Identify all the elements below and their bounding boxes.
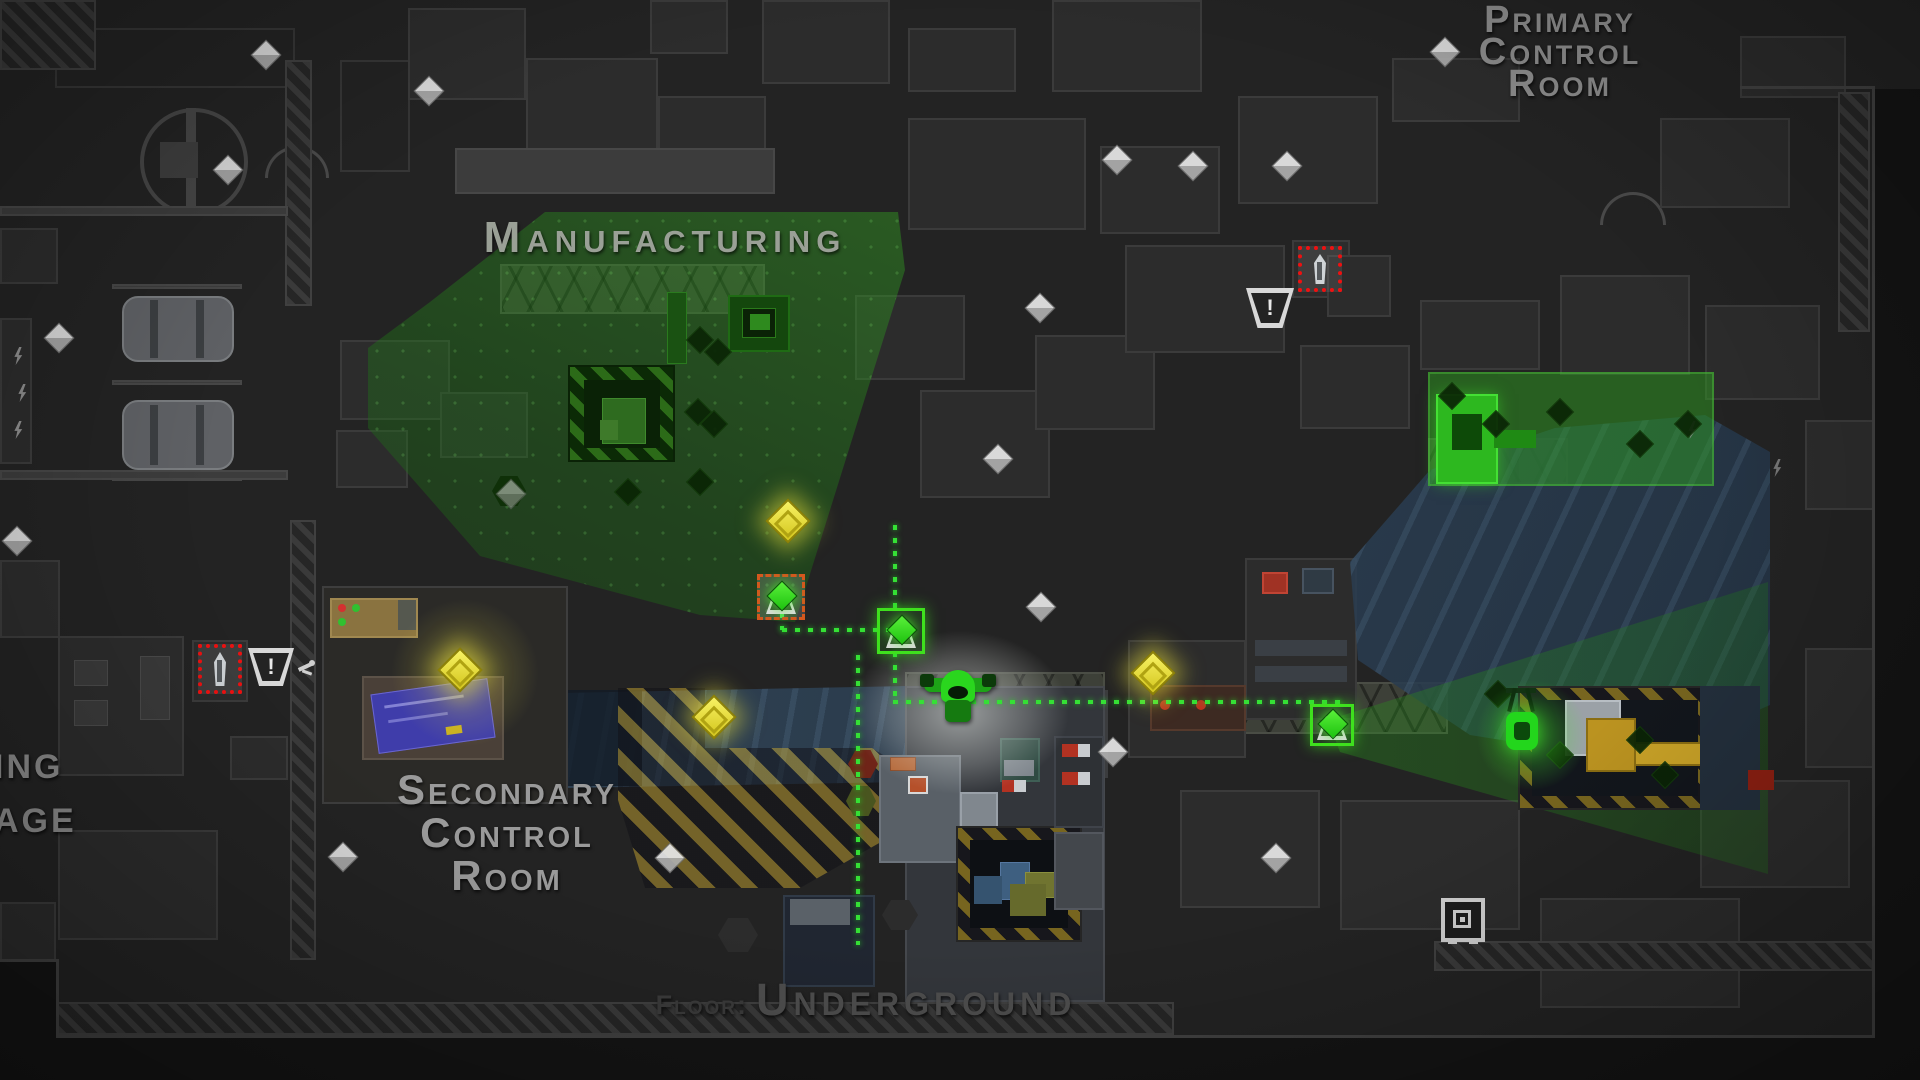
map-detail	[1586, 718, 1636, 772]
objective-box[interactable]	[877, 608, 925, 654]
map-detail	[352, 604, 360, 612]
label-manufacturing: Manufacturing	[455, 220, 875, 256]
room-outline	[340, 60, 410, 172]
round-structure-core	[160, 142, 198, 178]
safe-icon[interactable]	[1441, 898, 1485, 942]
wall-block-light	[112, 284, 242, 289]
wall-block	[650, 0, 728, 54]
wall-block	[762, 0, 890, 84]
guard-alert-marker[interactable]	[198, 644, 242, 694]
hexagon-outline	[718, 918, 758, 952]
map-detail	[338, 604, 346, 612]
warning-exclamation: !	[253, 653, 289, 681]
spark-icon	[1771, 459, 1783, 477]
wall-block	[920, 390, 1050, 498]
hatched-wall	[0, 0, 96, 70]
wall-block-light	[455, 148, 775, 194]
loot-diamond-inner	[774, 510, 802, 538]
map-detail	[1062, 772, 1090, 785]
wall-block	[855, 295, 965, 380]
coin-diamond[interactable]	[1, 525, 32, 556]
map-detail	[667, 292, 687, 364]
label-parking-garage-fragment: ing age	[0, 736, 84, 844]
map-detail	[196, 300, 204, 358]
hatched-wall	[285, 60, 312, 306]
wall-block	[1705, 305, 1820, 400]
label-secondary-control-room: Secondary Control Room	[372, 768, 642, 897]
warning-exclamation: !	[1251, 293, 1289, 323]
map-detail	[1302, 568, 1334, 594]
worker-handle-bar	[1506, 688, 1536, 693]
label-floor: Floor:	[598, 994, 748, 1016]
wall-block	[0, 560, 60, 638]
map-frame-bottom-left-v	[56, 959, 59, 1038]
coin-diamond[interactable]	[1024, 292, 1055, 323]
worker-body-detail	[1514, 722, 1530, 740]
warning-icon: !	[248, 648, 294, 686]
wall-block	[1052, 0, 1202, 92]
wall-block	[230, 736, 288, 780]
objective-box[interactable]	[1310, 704, 1354, 746]
loot-diamond-inner	[1139, 662, 1167, 690]
door-arc	[1600, 192, 1666, 225]
hatched-wall	[1838, 92, 1870, 332]
wall-block	[1420, 300, 1540, 370]
wall-block	[1340, 800, 1520, 930]
map-detail	[122, 400, 234, 470]
path-segment	[893, 652, 897, 702]
coin-diamond[interactable]	[654, 842, 685, 873]
loot-diamond-inner	[446, 659, 474, 687]
hatched-wall	[1434, 941, 1874, 971]
guard-alert-marker[interactable]	[1298, 246, 1342, 292]
coin-diamond[interactable]	[1025, 591, 1056, 622]
map-frame-bottom-fill	[0, 1038, 1920, 1080]
wall-block-light	[0, 206, 288, 216]
catwalk-truss	[500, 264, 765, 314]
path-segment	[893, 525, 897, 611]
wall-block	[336, 430, 408, 488]
wall-block	[0, 228, 58, 284]
map-detail	[790, 899, 850, 925]
coin-diamond[interactable]	[43, 322, 74, 353]
map-detail	[1255, 666, 1347, 682]
map-detail	[600, 420, 618, 440]
wall-block	[340, 340, 450, 420]
safe-foot	[1448, 938, 1457, 944]
wall-block	[908, 118, 1086, 230]
map-detail	[1054, 832, 1104, 910]
map-detail	[1452, 414, 1482, 450]
map-detail	[1700, 686, 1760, 810]
loot-diamond[interactable]	[765, 498, 810, 543]
map-detail	[74, 660, 108, 686]
wall-block	[658, 96, 766, 152]
loot-diamond[interactable]	[691, 694, 736, 739]
dog-icon	[298, 658, 316, 680]
player-character[interactable]	[920, 664, 996, 730]
player-hand-right	[982, 674, 996, 687]
wall-block	[1300, 345, 1410, 429]
wall-block	[1660, 118, 1790, 208]
label-primary-control-room: Primary Control Room	[1440, 4, 1680, 100]
game-map-viewport[interactable]: Primary Control Room Manufacturing Secon…	[0, 0, 1920, 1080]
crate-diamond	[614, 478, 642, 506]
wall-block-light	[112, 380, 242, 385]
path-segment	[856, 655, 860, 945]
map-detail	[150, 300, 158, 358]
map-detail	[1255, 640, 1347, 656]
hexagon-barrel-green	[846, 786, 876, 816]
safe-foot	[1469, 938, 1478, 944]
map-detail	[122, 296, 234, 362]
guard-figure-icon	[1310, 254, 1330, 284]
loot-diamond-inner	[700, 706, 728, 734]
coin-diamond[interactable]	[327, 841, 358, 872]
wall-block	[1560, 275, 1690, 375]
wall-block	[908, 28, 1016, 92]
wall-block	[1180, 790, 1320, 908]
map-frame-top-right	[1740, 86, 1875, 89]
map-detail	[338, 618, 346, 626]
worker-npc[interactable]	[1500, 686, 1544, 756]
hatched-wall	[290, 520, 316, 960]
map-detail	[74, 700, 108, 726]
label-floor-value: Underground	[756, 982, 1056, 1019]
map-detail	[1748, 770, 1774, 790]
map-detail	[140, 656, 170, 720]
wall-block	[1238, 96, 1378, 204]
map-detail	[150, 405, 158, 465]
map-detail	[1262, 572, 1288, 594]
player-body	[945, 700, 971, 722]
wall-block-light	[0, 470, 288, 480]
safe-dial	[1460, 917, 1465, 922]
wall-block	[58, 830, 218, 940]
map-frame-right-fill	[1875, 89, 1920, 1038]
player-hand-left	[920, 674, 934, 687]
objective-box[interactable]	[757, 574, 805, 620]
player-visor	[948, 686, 968, 699]
guard-figure-icon	[210, 652, 230, 686]
wall-block	[440, 392, 528, 458]
map-frame-bottom-left-fill	[0, 962, 56, 1038]
map-detail	[1010, 884, 1046, 916]
map-detail	[960, 792, 998, 828]
map-detail	[196, 405, 204, 465]
wall-block	[0, 318, 32, 464]
map-detail	[750, 314, 770, 330]
map-detail	[1062, 744, 1090, 757]
map-detail	[974, 876, 1002, 904]
crate-diamond	[686, 468, 714, 496]
